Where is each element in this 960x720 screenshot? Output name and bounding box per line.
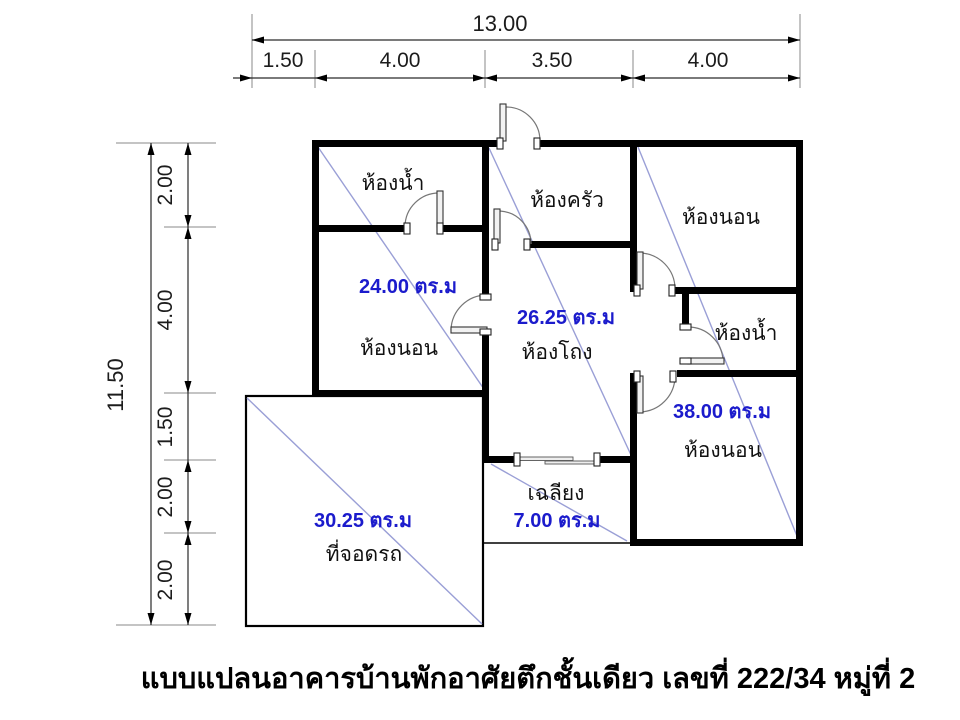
area-label-porch: 7.00 ตร.ม <box>514 510 601 532</box>
door-jamb <box>669 285 675 296</box>
door-arc <box>640 253 675 289</box>
wall-bath-tl-bottom-a <box>312 225 407 232</box>
room-label-bathroom-right: ห้องน้ำ <box>715 318 778 345</box>
arrowhead <box>148 613 155 625</box>
wall-hall-left-lower <box>482 333 489 463</box>
door-jamb <box>480 329 491 335</box>
arrowhead <box>788 37 800 44</box>
dim-left-seg-2: 4.00 <box>154 290 177 331</box>
room-label-bedroom-left: ห้องนอน <box>360 337 438 360</box>
arrowhead <box>240 75 252 82</box>
arrowhead <box>185 533 192 545</box>
dim-top-seg-1: 1.50 <box>263 49 304 72</box>
wall-bedroom-tr-bottom <box>673 287 803 294</box>
dim-left-seg-5: 2.00 <box>154 560 177 601</box>
wall-kitchen-right <box>630 140 637 292</box>
dim-top-total: 13.00 <box>472 11 527 36</box>
arrowhead <box>315 75 327 82</box>
door-jamb <box>534 138 540 149</box>
door-leaf <box>688 358 724 364</box>
arrowhead <box>185 521 192 533</box>
door-jamb <box>437 223 443 234</box>
area-label-bedroom-left: 24.00 ตร.ม <box>359 276 457 298</box>
sliding-door-panel <box>519 457 573 461</box>
door-jamb <box>594 453 600 466</box>
arrowhead <box>788 75 800 82</box>
arrowhead <box>473 75 485 82</box>
room-label-bedroom-top-right: ห้องนอน <box>682 206 760 229</box>
arrowhead <box>185 215 192 227</box>
arrowhead <box>485 75 497 82</box>
door-jamb <box>634 285 640 296</box>
door-arc <box>506 107 540 141</box>
dim-left-seg-4: 2.00 <box>154 477 177 518</box>
door-leaf <box>437 191 443 227</box>
wall-top-left <box>312 140 500 147</box>
room-label-bedroom-bottom-right: ห้องนอน <box>684 439 762 462</box>
door-jamb <box>524 239 530 250</box>
arrowhead <box>185 143 192 155</box>
arrowhead <box>252 37 264 44</box>
dim-top-seg-3: 3.50 <box>532 49 573 72</box>
arrowhead <box>148 143 155 155</box>
arrowhead <box>185 613 192 625</box>
room-label-bathroom-top-left: ห้องน้ำ <box>362 168 425 195</box>
arrowhead <box>621 75 633 82</box>
area-label-hall: 26.25 ตร.ม <box>517 307 615 329</box>
dim-left-total: 11.50 <box>103 358 128 411</box>
dim-top-seg-4: 4.00 <box>688 49 729 72</box>
dimension-annotations-top: 13.00 1.50 4.00 3.50 4.00 <box>233 11 800 88</box>
plan-caption: แบบแปลนอาคารบ้านพักอาศัยตึกชั้นเดียว เลข… <box>141 656 915 696</box>
arrowhead <box>185 381 192 393</box>
door-jamb <box>680 358 691 364</box>
dim-left-seg-1: 2.00 <box>154 165 177 206</box>
room-label-carport: ที่จอดรถ <box>326 539 402 566</box>
dim-left-seg-3: 1.50 <box>154 407 177 448</box>
floor-plan-page: 13.00 1.50 4.00 3.50 4.00 11.50 2 <box>0 0 960 720</box>
door-jamb <box>634 371 640 382</box>
door-jamb <box>497 138 503 149</box>
door-jamb <box>670 371 676 382</box>
door-jamb <box>404 223 410 234</box>
wall-bath-right-bottom <box>677 370 803 377</box>
wall-top-right <box>536 140 803 147</box>
wall-bath-tl-bottom-b <box>440 225 489 232</box>
door-jamb <box>514 453 520 466</box>
wall-bath-right-left <box>682 292 689 328</box>
wall-kitchen-bottom <box>527 241 637 248</box>
door-leaf <box>494 209 500 243</box>
door-jamb <box>480 294 491 300</box>
dim-top-seg-2: 4.00 <box>380 49 421 72</box>
door-leaf <box>500 104 506 141</box>
area-label-carport: 30.25 ตร.ม <box>314 510 412 532</box>
door-arc <box>405 193 440 227</box>
room-label-porch: เฉลียง <box>528 482 585 505</box>
wall-bedroom-br-bottom <box>630 539 803 546</box>
room-label-kitchen: ห้องครัว <box>530 189 604 212</box>
wall-porch-top-b <box>597 456 637 463</box>
arrowhead <box>185 227 192 239</box>
dimension-annotations-left: 11.50 2.00 4.00 1.50 2.00 2.00 <box>103 143 216 625</box>
door-jamb <box>680 324 691 330</box>
wall-left <box>312 140 319 397</box>
wall-hall-left-upper <box>482 140 489 298</box>
floor-plan-svg: 13.00 1.50 4.00 3.50 4.00 11.50 2 <box>0 0 960 720</box>
area-label-bedroom-bottom-right: 38.00 ตร.ม <box>673 401 771 423</box>
room-label-hall: ห้องโถง <box>522 340 593 364</box>
arrowhead <box>633 75 645 82</box>
wall-right <box>796 140 803 546</box>
arrowhead <box>185 460 192 472</box>
sliding-door-panel <box>545 461 597 464</box>
wall-porch-top-a <box>482 456 517 463</box>
wall-house-south <box>312 390 489 397</box>
door-jamb <box>492 239 498 250</box>
door-leaf <box>637 252 643 289</box>
